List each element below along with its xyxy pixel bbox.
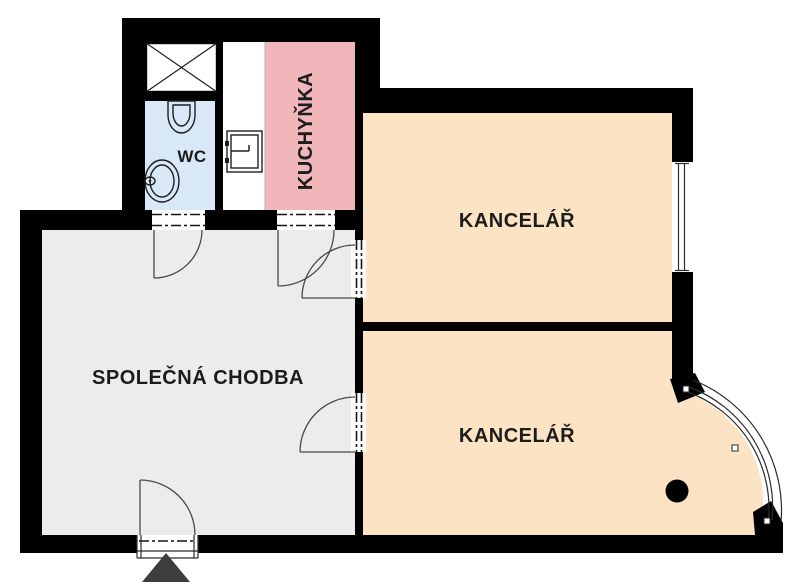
wall-segment xyxy=(198,535,783,553)
wall-segment xyxy=(122,18,145,230)
wall-segment xyxy=(672,113,693,162)
window-straight xyxy=(672,162,693,272)
wall-segment xyxy=(355,322,678,331)
wall-segment xyxy=(335,210,363,230)
office-top-label: KANCELÁŘ xyxy=(459,208,575,232)
glass-joint xyxy=(683,386,689,392)
door-opening xyxy=(277,210,335,230)
wall-segment xyxy=(355,230,363,240)
office-bottom-label: KANCELÁŘ xyxy=(459,423,575,447)
wall-segment xyxy=(20,535,137,553)
utility-strip-floor xyxy=(223,42,265,210)
wall-segment xyxy=(20,210,42,553)
door-opening xyxy=(137,535,198,558)
floor-fills xyxy=(42,42,763,535)
sink-knob xyxy=(225,141,229,146)
glass-joint xyxy=(764,518,770,524)
wall-segment xyxy=(205,210,277,230)
shower-bay-icon xyxy=(146,43,217,92)
wall-segment xyxy=(355,452,363,535)
wall-segment xyxy=(355,88,693,113)
column-dot-icon xyxy=(666,480,689,503)
floor-plan: SPOLEČNÁ CHODBA KANCELÁŘ KANCELÁŘ WC KUC… xyxy=(0,0,800,584)
door-opening xyxy=(152,210,205,230)
floor-plan-canvas: SPOLEČNÁ CHODBA KANCELÁŘ KANCELÁŘ WC KUC… xyxy=(0,0,800,584)
door-opening xyxy=(351,240,366,298)
sink-knob xyxy=(225,158,229,163)
wall-segment xyxy=(355,113,363,211)
door-opening xyxy=(351,393,366,452)
wall-segment xyxy=(355,298,363,393)
glass-joint xyxy=(732,445,738,451)
washbasin-tap-dot xyxy=(149,180,152,183)
wall-segment xyxy=(122,18,380,42)
wc-label: WC xyxy=(177,147,206,166)
window-opening xyxy=(672,162,693,272)
wall-segment xyxy=(145,92,218,101)
corridor-label: SPOLEČNÁ CHODBA xyxy=(92,365,304,389)
kitchen-label: KUCHYŇKA xyxy=(293,72,317,190)
